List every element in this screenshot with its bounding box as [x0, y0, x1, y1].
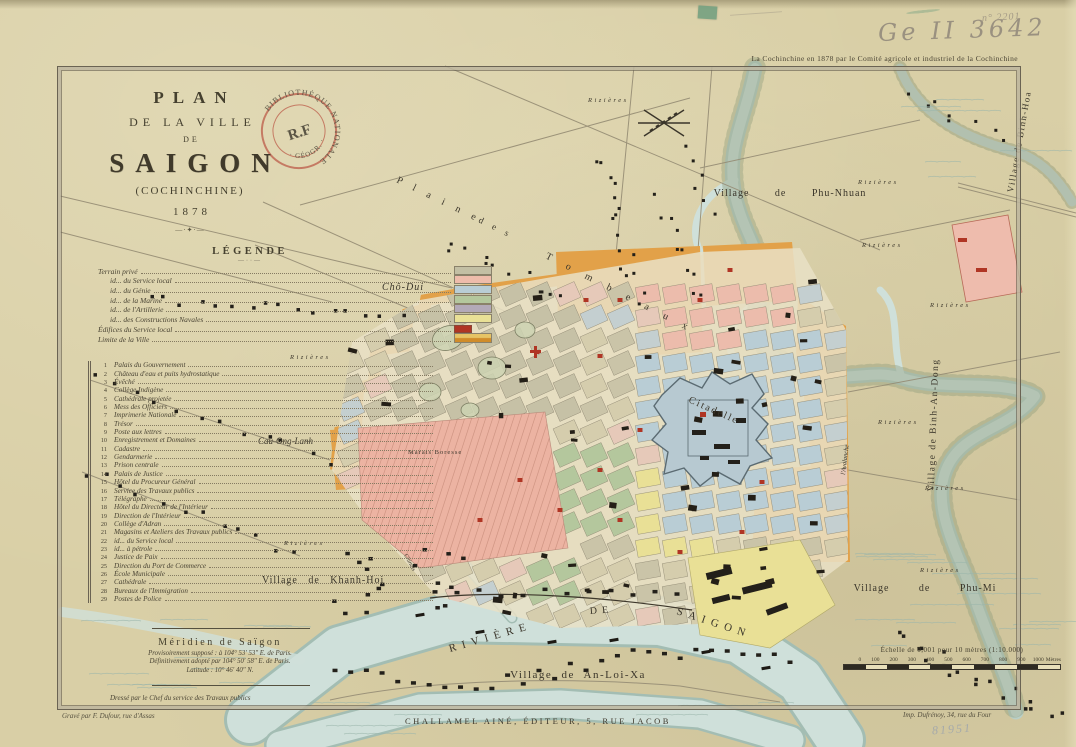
index-item-number: 4 [94, 387, 107, 394]
index-item-number: 18 [94, 504, 107, 511]
green-label [698, 5, 718, 19]
divider [152, 685, 310, 686]
index-item-label: Hôtel du Procureur Général [114, 478, 196, 486]
legend-swatch [454, 266, 492, 275]
index-item-number: 1 [94, 362, 107, 369]
index-item-number: 21 [94, 529, 107, 536]
legend-list: Terrain privéid... du Service localid...… [98, 266, 492, 344]
index-item-label: Poste aux lettres [114, 428, 162, 436]
scale-segment [974, 665, 996, 669]
index-item-number: 6 [94, 404, 107, 411]
scale-unit: Mètres [1046, 657, 1061, 663]
scale-tick: 900 [1007, 657, 1025, 663]
legend-item: Limite de la Ville [98, 334, 492, 344]
index-item-number: 25 [94, 563, 107, 570]
index-item: 23id... à pétrole [94, 545, 436, 553]
printer-note: Imp. Dufrénoy, 34, rue du Four [903, 711, 991, 719]
index-item-label: Service des Travaux publics [114, 487, 194, 495]
index-item-label: Imprimerie Nationale [114, 411, 176, 419]
index-item-label: Palais de Justice [114, 470, 163, 478]
scale-segment [1038, 665, 1060, 669]
scale-label: Échelle de 0,001 pour 10 mètres (1:10.00… [843, 646, 1061, 654]
index-item-label: Collège d'Adran [114, 520, 161, 528]
index-item-number: 13 [94, 462, 107, 469]
index-item: 6Mess des Officiers [94, 403, 436, 411]
index-item-number: 29 [94, 596, 107, 603]
index-item-number: 16 [94, 488, 107, 495]
index-item: 19Direction de l'Intérieur [94, 511, 436, 519]
index-item-number: 2 [94, 371, 107, 378]
index-item-label: École Municipale [114, 570, 165, 578]
title-region: (COCHINCHINE) [95, 185, 285, 197]
scale-tick: 400 [916, 657, 934, 663]
index-item-number: 8 [94, 421, 107, 428]
index-item: 26École Municipale [94, 570, 436, 578]
index-item-label: Magasins et Ateliers des Travaux publics [114, 528, 232, 536]
scale-segment [866, 665, 888, 669]
index-item-label: Direction du Port de Commerce [114, 562, 206, 570]
shelfmark-annotation: Ge II 3642 [878, 13, 1048, 47]
index-item-label: id... à pétrole [114, 545, 152, 553]
scale-tick: 200 [880, 657, 898, 663]
index-item: 1Palais du Gouvernement [94, 361, 436, 369]
legend-item: id... des Constructions Navales [98, 314, 492, 324]
legend-swatch [454, 285, 492, 294]
index-item-label: Château d'eau et puits hydrostatique [114, 370, 219, 378]
index-item: 14Palais de Justice [94, 469, 436, 477]
index-item-label: id... du Service local [114, 537, 173, 545]
scale-tick: 700 [971, 657, 989, 663]
legend-item-label: id... de la Marine [110, 296, 162, 305]
scale-bar: Échelle de 0,001 pour 10 mètres (1:10.00… [843, 646, 1061, 670]
scale-segment [952, 665, 974, 669]
scale-segment [930, 665, 952, 669]
index-item-number: 9 [94, 429, 107, 436]
index-item-number: 17 [94, 496, 107, 503]
index-item-label: Enregistrement et Domaines [114, 436, 196, 444]
index-item-label: Cathédrale projetée [114, 395, 171, 403]
index-item: 8Trésor [94, 419, 436, 427]
index-item-number: 27 [94, 579, 107, 586]
index-item: 7Imprimerie Nationale [94, 411, 436, 419]
meridian-line1: Provisoirement supposé : à 104° 53′ 53″ … [95, 650, 345, 657]
legend-swatch [454, 295, 492, 304]
index-item: 12Gendarmerie [94, 453, 436, 461]
index-item-number: 12 [94, 454, 107, 461]
legend-item: id... de l'Artillerie [98, 305, 492, 315]
index-item: 5Cathédrale projetée [94, 394, 436, 402]
scale-segment [995, 665, 1017, 669]
legend-item: Terrain privé [98, 266, 492, 276]
index-item-label: Palais du Gouvernement [114, 361, 185, 369]
index-item-number: 11 [94, 446, 107, 453]
drawn-by-note: Dressé par le Chef du service des Travau… [110, 694, 251, 702]
index-item: 17Télégraphe [94, 495, 436, 503]
index-list: 1Palais du Gouvernement2Château d'eau et… [88, 361, 436, 603]
title-de: DE [95, 135, 285, 144]
meridian-line2: Définitivement adopté par 104° 50′ 58″ E… [95, 658, 345, 665]
index-item: 24Justice de Paix [94, 553, 436, 561]
legend-item-label: id... des Constructions Navales [110, 315, 203, 324]
title-ornament: —·✦·— [95, 226, 285, 234]
scale-tick: 500 [934, 657, 952, 663]
legend-item: id... du Génie [98, 285, 492, 295]
legend-item: id... du Service local [98, 276, 492, 286]
meridian-line3: Latitude : 10° 46′ 40″ N. [95, 667, 345, 674]
index-item-label: Cadastre [114, 445, 140, 453]
credit-line: La Cochinchine en 1878 par le Comité agr… [751, 54, 1018, 63]
map-sheet: P l a i n e d e s T o m b e a u x Chô-Du… [0, 0, 1076, 747]
index-item-number: 10 [94, 437, 107, 444]
index-item: 21Magasins et Ateliers des Travaux publi… [94, 528, 436, 536]
index-item-label: Gendarmerie [114, 453, 152, 461]
title-plan: PLAN [95, 88, 285, 108]
index-item-label: Évêché [114, 378, 135, 386]
index-item-label: Bureaux de l'Immigration [114, 587, 188, 595]
legend-item-label: id... du Service local [110, 276, 172, 285]
index-item: 2Château d'eau et puits hydrostatique [94, 369, 436, 377]
index-item: 11Cadastre [94, 444, 436, 452]
index-item-label: Cathédrale [114, 578, 146, 586]
scale-tick: 600 [953, 657, 971, 663]
legend-item-label: id... de l'Artillerie [110, 305, 163, 314]
divider [152, 628, 310, 629]
index-item-number: 22 [94, 538, 107, 545]
index-item: 10Enregistrement et Domaines [94, 436, 436, 444]
index-item: 13Prison centrale [94, 461, 436, 469]
index-item-label: Hôtel du Directeur de l'Intérieur [114, 503, 208, 511]
scale-rule [843, 664, 1061, 670]
index-item-number: 3 [94, 379, 107, 386]
title-year: 1878 [95, 206, 285, 218]
legend-swatch [454, 275, 492, 284]
meridian-block: Méridien de Saïgon Provisoirement suppos… [95, 637, 345, 674]
legend-title: LÉGENDE [95, 246, 405, 257]
index-item-label: Collège Indigène [114, 386, 163, 394]
scale-tick: 100 [861, 657, 879, 663]
legend-item-label: Édifices du Service local [98, 325, 172, 334]
index-item-label: Télégraphe [114, 495, 147, 503]
title-de-la-ville: DE LA VILLE [95, 115, 285, 130]
catalog-number-annotation: n° 2201 [982, 11, 1021, 24]
index-item: 22id... du Service local [94, 536, 436, 544]
index-item-number: 7 [94, 412, 107, 419]
legend-item-label: id... du Génie [110, 286, 151, 295]
legend-swatch [454, 304, 492, 313]
index-item: 16Service des Travaux publics [94, 486, 436, 494]
scale-tick: 1000 [1026, 657, 1044, 663]
index-item-label: Trésor [114, 420, 133, 428]
index-item-number: 14 [94, 471, 107, 478]
index-item-label: Justice de Paix [114, 553, 158, 561]
index-item-number: 26 [94, 571, 107, 578]
index-item: 18Hôtel du Directeur de l'Intérieur [94, 503, 436, 511]
index-item-number: 20 [94, 521, 107, 528]
legend-swatch [454, 333, 492, 343]
index-item-number: 5 [94, 396, 107, 403]
index-item-number: 15 [94, 479, 107, 486]
index-item: 15Hôtel du Procureur Général [94, 478, 436, 486]
index-item-label: Direction de l'Intérieur [114, 512, 181, 520]
inventory-number: 81951 [932, 721, 973, 739]
scale-segment [909, 665, 931, 669]
index-item-number: 24 [94, 554, 107, 561]
index-item-number: 19 [94, 513, 107, 520]
title-block: PLAN DE LA VILLE DE SAIGON (COCHINCHINE)… [95, 88, 285, 234]
index-item: 27Cathédrale [94, 578, 436, 586]
legend-item: Édifices du Service local [98, 324, 492, 334]
index-item-label: Prison centrale [114, 461, 159, 469]
scale-ticks: 01002003004005006007008009001000Mètres [843, 657, 1061, 663]
scale-tick: 0 [843, 657, 861, 663]
index-item: 9Poste aux lettres [94, 428, 436, 436]
index-item: 25Direction du Port de Commerce [94, 561, 436, 569]
index-item: 4Collège Indigène [94, 386, 436, 394]
scale-segment [887, 665, 909, 669]
scale-tick: 300 [898, 657, 916, 663]
index-item: 3Évêché [94, 378, 436, 386]
legend-item-label: Limite de la Ville [98, 335, 149, 344]
index-item: 28Bureaux de l'Immigration [94, 586, 436, 594]
legend-ornament: —··— [95, 258, 405, 264]
index-item: 20Collège d'Adran [94, 520, 436, 528]
index-item-label: Postes de Police [114, 595, 162, 603]
scale-tick: 800 [989, 657, 1007, 663]
legend-swatch [454, 314, 492, 323]
legend-item-label: Terrain privé [98, 267, 138, 276]
legend-item: id... de la Marine [98, 295, 492, 305]
index-item: 29Postes de Police [94, 595, 436, 603]
index-item-number: 23 [94, 546, 107, 553]
scale-segment [844, 665, 866, 669]
scale-segment [1017, 665, 1039, 669]
meridian-title: Méridien de Saïgon [95, 637, 345, 648]
index-item-label: Mess des Officiers [114, 403, 167, 411]
title-city: SAIGON [95, 148, 285, 179]
index-item-number: 28 [94, 588, 107, 595]
